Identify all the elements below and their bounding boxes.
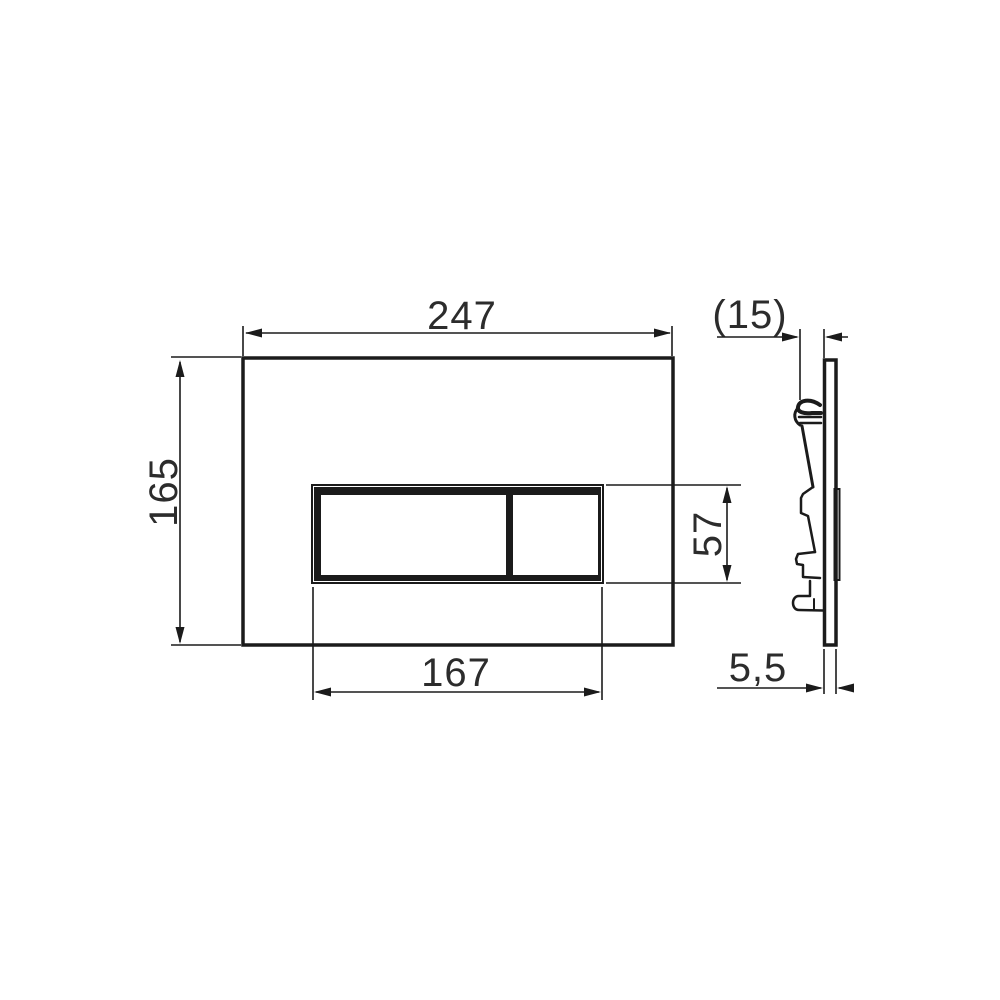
dimension-plate-width: 247	[243, 294, 672, 356]
dim-arrow-top	[723, 486, 732, 503]
dim-arrow-right-pointing	[806, 684, 823, 693]
plate-height-label: 165	[142, 457, 186, 527]
dim-arrow-bottom	[723, 565, 732, 582]
dim-arrow-right	[584, 688, 601, 697]
front-view	[243, 358, 673, 645]
dim-arrow-left	[314, 688, 331, 697]
plate-thickness-label: 5,5	[729, 646, 788, 690]
buttons-height-label: 57	[686, 511, 730, 558]
dim-arrow-left	[245, 329, 262, 338]
dim-arrow-bottom	[176, 627, 185, 644]
technical-drawing: 247 165 167 57	[0, 0, 1000, 1000]
dim-arrow-top	[176, 360, 185, 377]
mounting-clips-profile	[793, 401, 823, 611]
large-flush-button	[321, 495, 506, 575]
depth-overall-label: (15)	[712, 293, 787, 337]
dim-arrow-right	[654, 329, 671, 338]
clip-hook-bottom	[793, 581, 823, 611]
dim-arrow-left-pointing	[837, 684, 854, 693]
drawing-canvas: 247 165 167 57	[0, 0, 1000, 1000]
side-view	[793, 360, 840, 645]
clip-bellows-top	[798, 401, 821, 414]
dim-arrow-left-pointing	[825, 333, 842, 342]
dimension-plate-height: 165	[142, 357, 241, 645]
dimension-plate-thickness: 5,5	[717, 646, 854, 694]
clip-finger-middle	[801, 487, 815, 552]
clip-step-lower	[796, 552, 820, 578]
plate-width-label: 247	[427, 294, 497, 338]
dimension-depth-overall: (15)	[712, 293, 848, 400]
buttons-width-label: 167	[421, 651, 491, 695]
small-flush-button	[513, 495, 598, 575]
clip-strut	[802, 426, 813, 487]
